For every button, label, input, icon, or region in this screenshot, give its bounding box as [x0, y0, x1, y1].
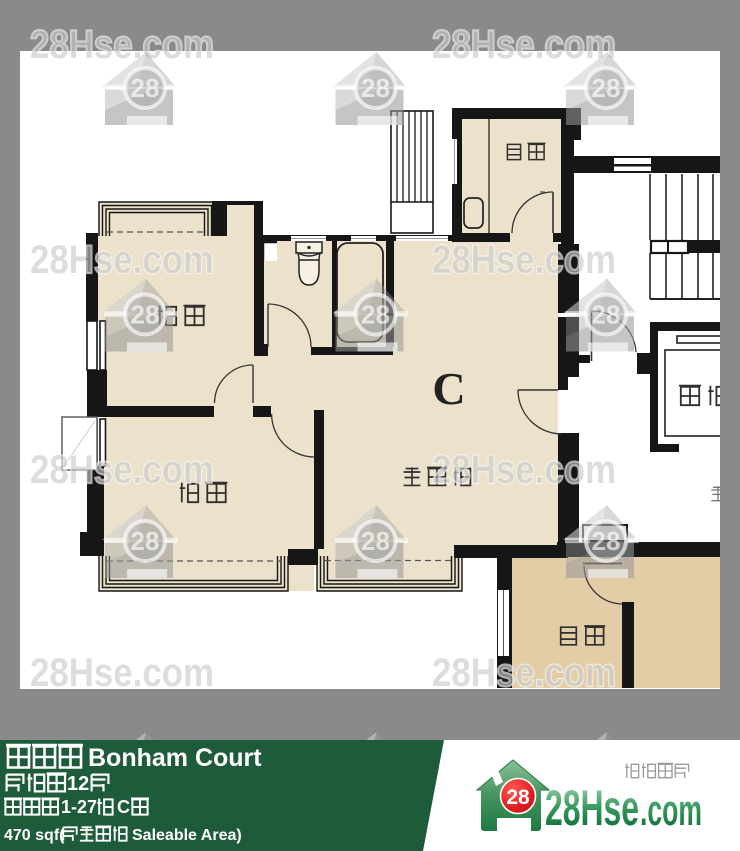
svg-text:28: 28 [592, 73, 621, 103]
svg-text:28: 28 [361, 526, 390, 556]
svg-text:28: 28 [592, 300, 621, 330]
svg-text:28: 28 [131, 73, 160, 103]
svg-text:28Hse: 28Hse [545, 780, 639, 836]
svg-text:28: 28 [592, 526, 621, 556]
svg-text:28Hse.com: 28Hse.com [432, 23, 616, 67]
svg-text:Saleable Area): Saleable Area) [132, 827, 242, 844]
svg-text:1-27: 1-27 [61, 797, 97, 817]
svg-text:28Hse.com: 28Hse.com [30, 651, 214, 695]
svg-text:28Hse.com: 28Hse.com [30, 23, 214, 67]
svg-text:C: C [117, 797, 130, 817]
svg-text:12: 12 [67, 773, 89, 795]
svg-text:28: 28 [361, 73, 390, 103]
svg-text:28Hse.com: 28Hse.com [30, 448, 214, 492]
svg-text:C: C [432, 363, 465, 414]
svg-text:28: 28 [506, 786, 530, 809]
svg-text:28Hse.com: 28Hse.com [432, 448, 616, 492]
svg-text:28: 28 [131, 526, 160, 556]
svg-text:28: 28 [361, 300, 390, 330]
svg-text:28: 28 [131, 300, 160, 330]
svg-text:28Hse.com: 28Hse.com [432, 651, 616, 695]
svg-text:28Hse.com: 28Hse.com [30, 238, 214, 282]
svg-text:.com: .com [640, 786, 702, 835]
svg-text:28Hse.com: 28Hse.com [432, 238, 616, 282]
svg-text:Bonham Court: Bonham Court [88, 744, 262, 772]
svg-text:470 sqf(: 470 sqf( [4, 827, 65, 844]
